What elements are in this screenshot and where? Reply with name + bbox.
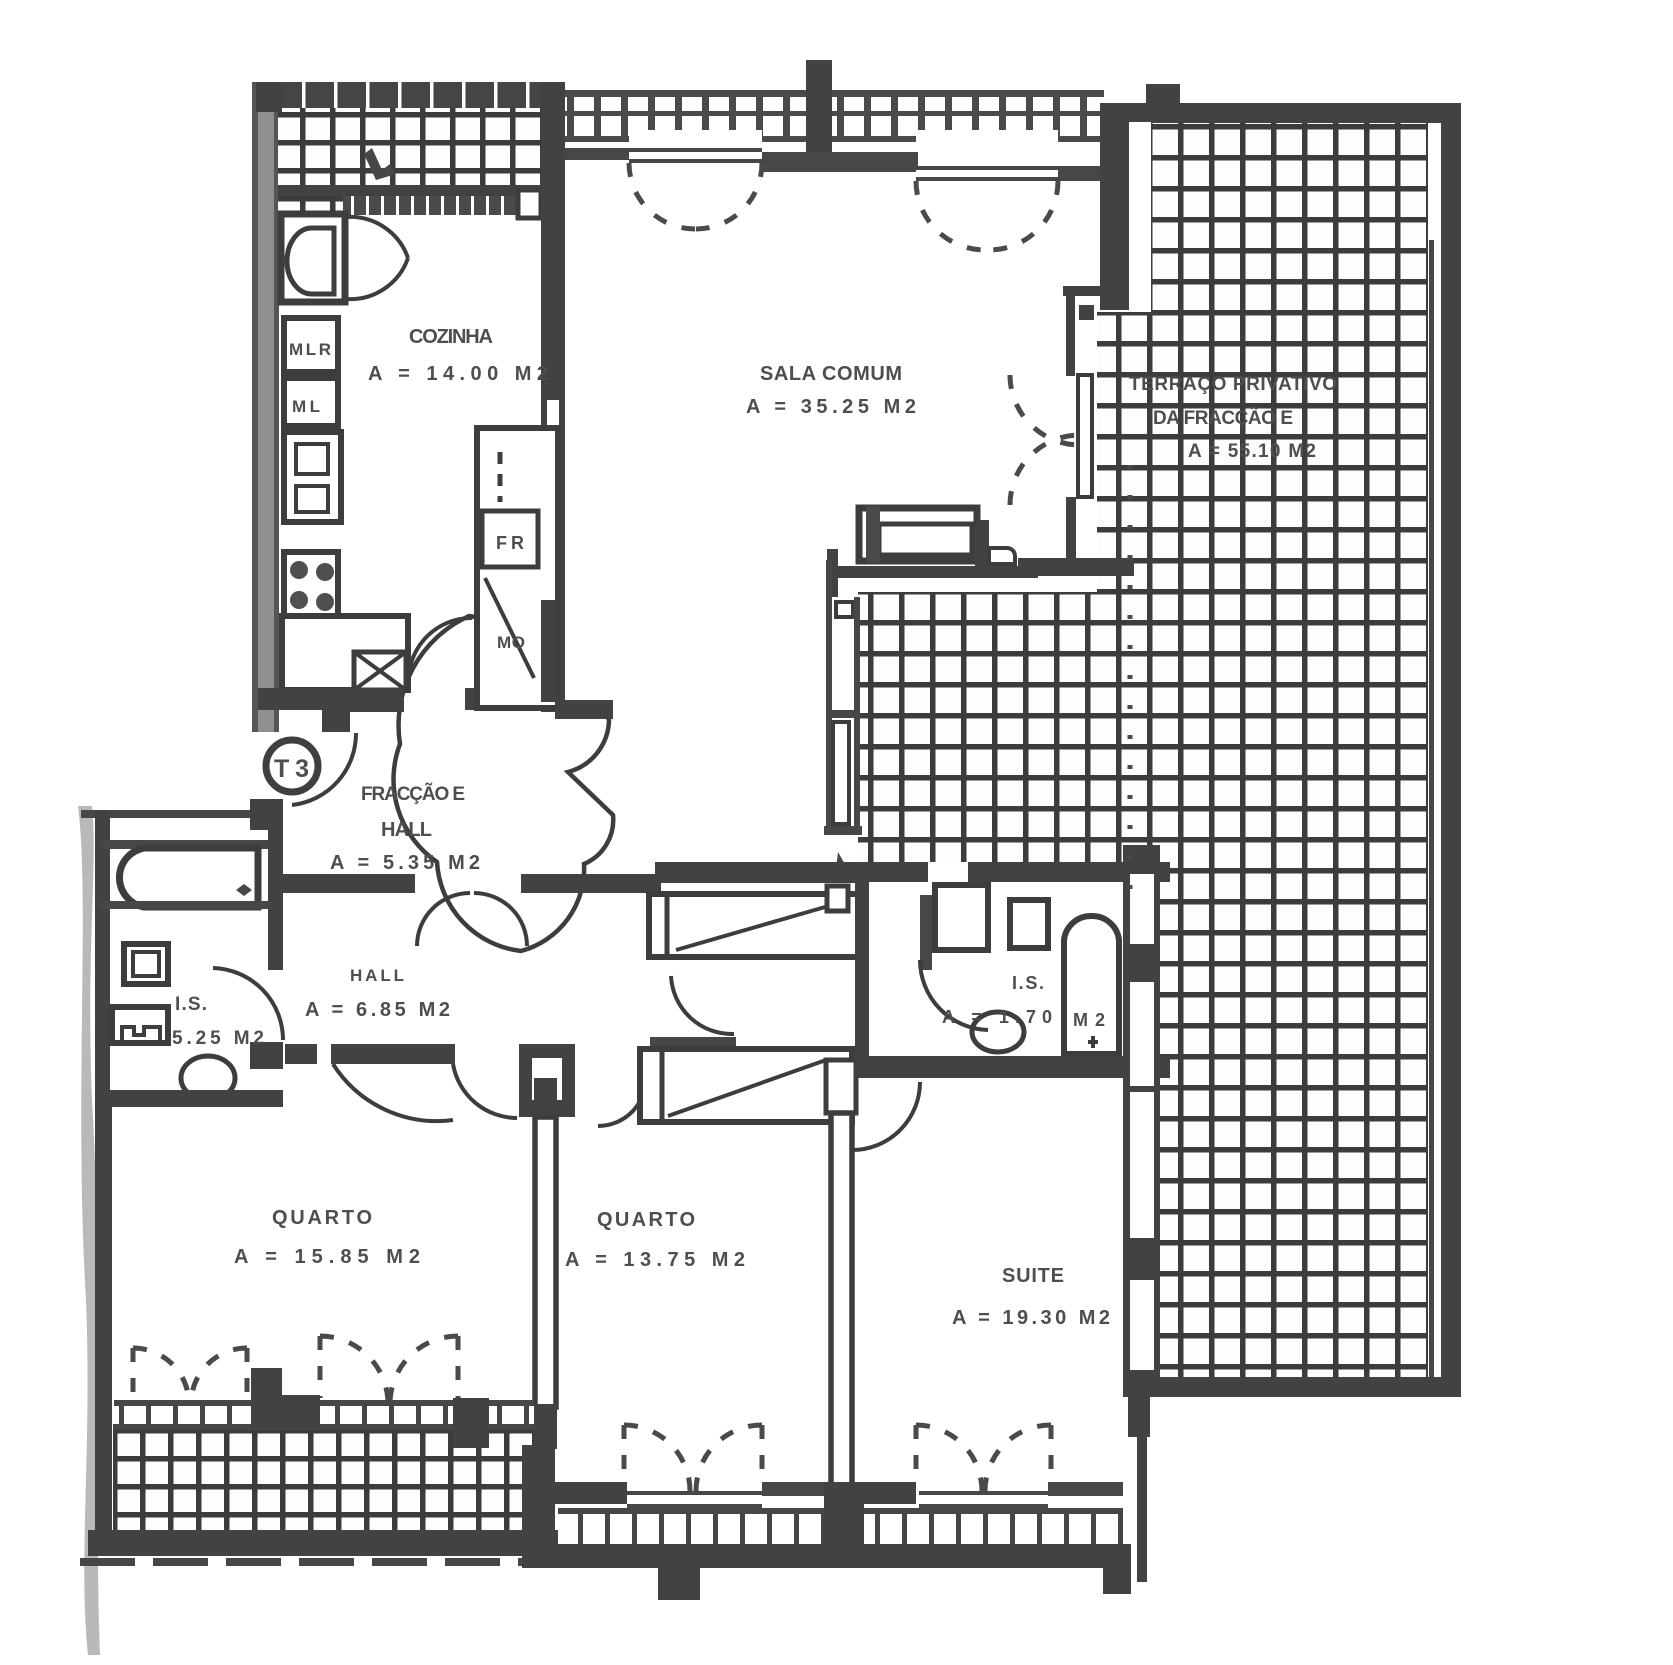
svg-text:SALA COMUM: SALA COMUM xyxy=(760,363,902,385)
svg-text:QUARTO: QUARTO xyxy=(597,1209,695,1231)
svg-text:I.S.: I.S. xyxy=(1012,973,1044,993)
svg-text:FRACÇÃO E: FRACÇÃO E xyxy=(361,783,465,805)
svg-text:ML: ML xyxy=(292,397,320,416)
svg-text:TERRAÇO PRIVATIVO: TERRAÇO PRIVATIVO xyxy=(1129,374,1337,395)
svg-text:HALL: HALL xyxy=(350,966,404,985)
svg-text:A = 55.10 M2: A = 55.10 M2 xyxy=(1188,441,1316,462)
svg-text:I.S.: I.S. xyxy=(175,994,207,1015)
svg-text:DA FRACÇÃO E: DA FRACÇÃO E xyxy=(1153,407,1293,429)
svg-text:SUITE: SUITE xyxy=(1002,1265,1064,1287)
svg-text:MO: MO xyxy=(497,633,525,652)
svg-text:HALL: HALL xyxy=(381,819,432,841)
svg-text:MLR: MLR xyxy=(289,340,331,359)
svg-text:COZINHA: COZINHA xyxy=(409,326,493,348)
